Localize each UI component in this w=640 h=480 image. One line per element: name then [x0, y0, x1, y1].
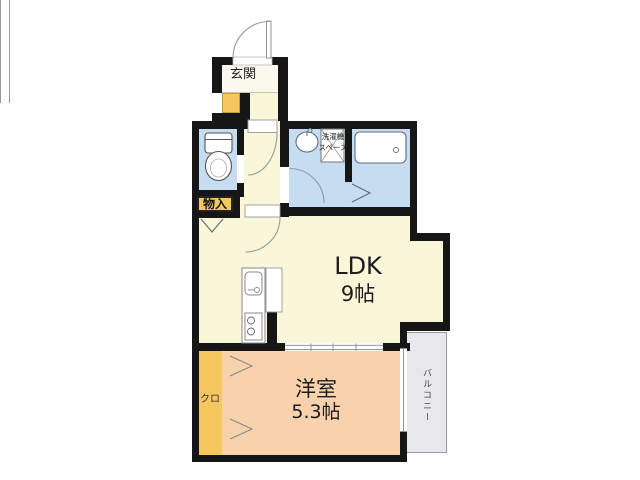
- wall: [192, 121, 250, 129]
- wall: [192, 343, 285, 351]
- entrance-label: 玄関: [215, 63, 271, 82]
- laundry-label: 洗濯機 スペース: [314, 132, 352, 154]
- wall: [237, 129, 244, 155]
- wall: [192, 455, 407, 462]
- wall: [400, 322, 450, 331]
- laundry-label-line2: スペース: [314, 143, 352, 154]
- wall: [192, 211, 240, 218]
- ldk-size-label: 9帖: [288, 280, 428, 308]
- ldk-label: LDK 9帖: [288, 252, 428, 308]
- western-room-label: 洋室 5.3帖: [246, 378, 386, 424]
- storage-label: 物入: [203, 198, 227, 210]
- laundry-label-line1: 洗濯機: [314, 132, 352, 143]
- shoe-cabinet: [222, 93, 240, 113]
- balcony-label: バルコニー: [420, 350, 433, 440]
- storage-box: 物入: [197, 196, 233, 212]
- wall: [278, 57, 288, 121]
- wall: [267, 312, 277, 343]
- ldk-name: LDK: [288, 252, 428, 280]
- entrance-step-line: [222, 92, 278, 93]
- wall: [280, 121, 417, 129]
- room-bathroom: [348, 129, 410, 207]
- closet-sliding-door: [0, 0, 10, 103]
- wall: [410, 121, 417, 241]
- floorplan-canvas: 物入: [0, 0, 640, 480]
- entrance-door-arc: [233, 22, 270, 59]
- western-room-size-label: 5.3帖: [246, 401, 386, 424]
- entrance-door-leaf: [267, 21, 272, 58]
- wall: [383, 343, 410, 351]
- wall: [240, 93, 250, 122]
- closet-label: クロ: [196, 390, 224, 405]
- wall: [237, 183, 244, 197]
- wall: [287, 207, 417, 216]
- western-room-name: 洋室: [246, 378, 386, 401]
- wall: [192, 121, 199, 462]
- wall: [443, 233, 450, 330]
